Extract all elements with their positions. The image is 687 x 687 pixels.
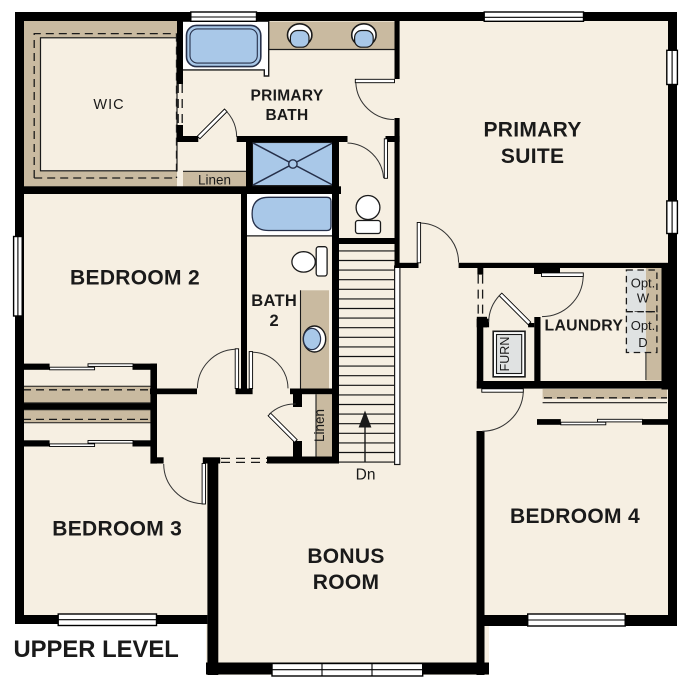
svg-text:SUITE: SUITE bbox=[501, 145, 564, 168]
svg-text:W: W bbox=[637, 291, 650, 306]
svg-text:BATH: BATH bbox=[265, 107, 308, 124]
svg-text:BEDROOM 2: BEDROOM 2 bbox=[70, 267, 200, 290]
svg-text:Opt.: Opt. bbox=[631, 276, 656, 291]
svg-text:Dn: Dn bbox=[356, 467, 376, 484]
svg-text:D: D bbox=[638, 335, 647, 350]
svg-text:BONUS: BONUS bbox=[307, 545, 384, 568]
svg-text:BEDROOM 4: BEDROOM 4 bbox=[510, 505, 640, 528]
svg-text:Linen: Linen bbox=[312, 409, 327, 442]
svg-text:FURN: FURN bbox=[498, 337, 512, 372]
svg-text:2: 2 bbox=[269, 312, 278, 330]
svg-text:UPPER LEVEL: UPPER LEVEL bbox=[14, 636, 179, 663]
svg-text:BEDROOM 3: BEDROOM 3 bbox=[52, 518, 182, 541]
svg-text:PRIMARY: PRIMARY bbox=[484, 119, 582, 142]
svg-text:Opt.: Opt. bbox=[631, 318, 656, 333]
svg-text:ROOM: ROOM bbox=[313, 571, 380, 594]
svg-text:LAUNDRY: LAUNDRY bbox=[545, 318, 624, 335]
svg-text:WIC: WIC bbox=[93, 97, 124, 113]
svg-text:Linen: Linen bbox=[198, 173, 231, 188]
svg-text:BATH: BATH bbox=[251, 292, 297, 310]
svg-text:PRIMARY: PRIMARY bbox=[250, 88, 323, 105]
